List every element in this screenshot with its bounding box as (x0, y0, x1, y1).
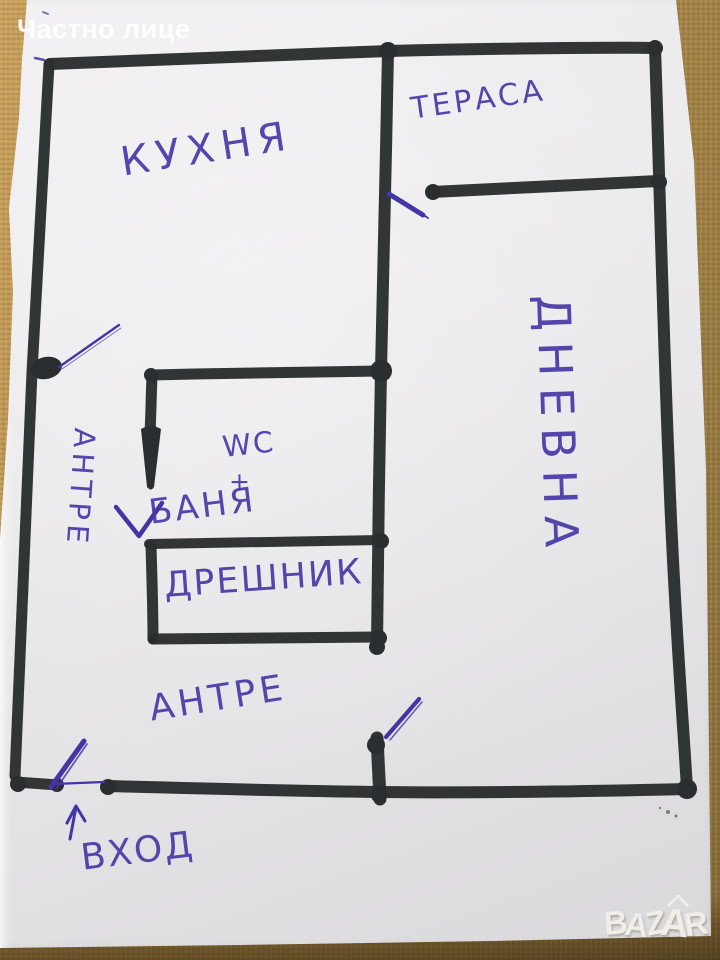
blob-middle-junction (370, 360, 392, 382)
wall-closet-bottom (153, 637, 378, 639)
wall-outer-top (50, 48, 655, 64)
paper-sheet: КУХНЯ ТЕРАСА ДНЕВНА WC + БАНЯ ДРЕШНИК АН… (0, 0, 720, 960)
kitchen-door-swing-echo (62, 328, 121, 369)
floor-plan-drawing (0, 0, 720, 960)
walls-group (15, 48, 687, 799)
blob-terrace-right-junction (651, 174, 667, 190)
blob-bottom-right-corner (677, 779, 697, 799)
blob-middle-wall-end (369, 639, 385, 655)
blob-wc-top-left-corner (144, 368, 158, 382)
entry-door-swing-stroke (51, 741, 84, 787)
floor-plan-photo: КУХНЯ ТЕРАСА ДНЕВНА WC + БАНЯ ДРЕШНИК АН… (0, 0, 720, 960)
ink-speckles (659, 807, 678, 818)
wall-outer-bottom (107, 786, 687, 792)
wall-outer-right (655, 48, 687, 789)
wall-terrace-divider (432, 181, 658, 192)
seller-type-badge: Частно лице (17, 14, 190, 45)
hall-living-door-echo (390, 702, 422, 740)
ink-blobs-group (10, 40, 697, 818)
room-label-hallway-side: АНТРЕ (62, 427, 99, 549)
blob-top-t-junction (379, 42, 397, 60)
room-label-wc: WC (221, 427, 277, 461)
blob-bottom-left-corner (10, 776, 26, 792)
blob-middle-stub-cross (371, 787, 387, 803)
wall-wc-top (152, 371, 381, 375)
watermark-letter: R (682, 905, 710, 941)
wall-outer-left (15, 64, 49, 776)
wall-middle-vertical (377, 51, 388, 646)
wall-wc-left (150, 376, 152, 432)
hall-living-door-mark (386, 699, 419, 737)
blob-top-right-corner (647, 40, 663, 56)
blob-wc-left-wall-taper (141, 426, 161, 490)
wall-wc-closet-divider (149, 540, 381, 544)
room-label-living-room: ДНЕВНА (530, 294, 585, 559)
terrace-door-mark-echo (402, 200, 428, 218)
blob-divider-right-junction (373, 533, 389, 549)
blob-middle-stub-top (367, 736, 385, 754)
wall-closet-left (151, 546, 153, 639)
blob-terrace-divider-cap (425, 184, 441, 200)
bazar-watermark-logo: B A Z A R (604, 906, 705, 939)
entrance-arrow-icon (67, 806, 85, 839)
kitchen-door-swing-line (59, 325, 119, 367)
pen-dot-top-left (35, 58, 44, 60)
